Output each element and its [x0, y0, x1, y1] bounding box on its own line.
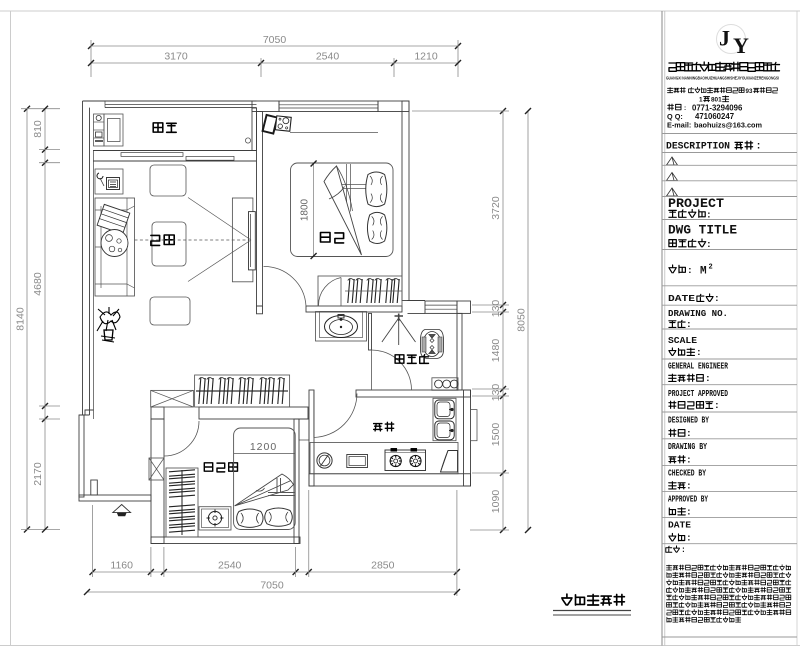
svg-text:3170: 3170 [164, 51, 188, 63]
svg-text:E-mail:: E-mail: [667, 121, 691, 130]
svg-text:PROJECT: PROJECT [668, 197, 725, 211]
svg-text:SCALE: SCALE [668, 335, 697, 346]
svg-text:3720: 3720 [490, 196, 502, 220]
svg-text:1090: 1090 [490, 490, 502, 514]
svg-text::: : [714, 293, 720, 304]
svg-text:GENERAL ENGINEER: GENERAL ENGINEER [668, 361, 728, 372]
svg-text:DESCRIPTION: DESCRIPTION [666, 142, 730, 153]
svg-text::: : [687, 265, 693, 276]
svg-text:0771-3294096: 0771-3294096 [692, 103, 743, 112]
svg-text:DRAWING NO.: DRAWING NO. [668, 308, 728, 319]
svg-text:GUANGXI NANNINGBAOHUIZHUANGSHI: GUANGXI NANNINGBAOHUIZHUANGSHISHEJIYOUXI… [666, 76, 779, 81]
svg-text::: : [686, 319, 692, 330]
svg-text:1800: 1800 [300, 198, 311, 221]
svg-text:APPROVED BY: APPROVED BY [668, 494, 708, 505]
svg-text:M: M [700, 266, 707, 278]
svg-text:baohuizs@163.com: baohuizs@163.com [694, 121, 762, 130]
svg-text:2540: 2540 [218, 560, 242, 572]
svg-text::: : [706, 239, 712, 250]
svg-text::: : [714, 400, 720, 411]
svg-text::: : [686, 481, 692, 492]
svg-text::: : [681, 546, 686, 555]
svg-text:130: 130 [490, 384, 502, 402]
svg-text:J: J [719, 26, 730, 51]
svg-text:CHECKED BY: CHECKED BY [668, 468, 706, 479]
svg-text::: : [706, 210, 712, 221]
svg-text:DATE: DATE [668, 293, 695, 304]
svg-text:1480: 1480 [490, 339, 502, 363]
svg-text:93: 93 [746, 88, 753, 95]
svg-text:7050: 7050 [263, 34, 287, 46]
svg-text:2540: 2540 [316, 51, 340, 63]
svg-text:130: 130 [490, 300, 502, 318]
svg-text:7050: 7050 [260, 580, 284, 592]
svg-text:2: 2 [709, 264, 713, 272]
svg-text::: : [686, 428, 692, 439]
svg-text:1200: 1200 [250, 441, 277, 453]
svg-text::: : [686, 455, 692, 466]
svg-text:810: 810 [32, 120, 44, 138]
svg-text:DRAWING BY: DRAWING BY [668, 441, 707, 452]
svg-text:Y: Y [733, 33, 749, 58]
svg-text:PROJECT APPROVED: PROJECT APPROVED [668, 388, 728, 399]
svg-text::: : [686, 507, 692, 518]
svg-text:2170: 2170 [32, 462, 44, 486]
svg-text::: : [696, 347, 702, 358]
svg-text::: : [684, 105, 686, 112]
svg-text:DWG TITLE: DWG TITLE [668, 224, 737, 238]
svg-text::: : [705, 373, 711, 384]
svg-text:2850: 2850 [371, 560, 395, 572]
svg-text:DESIGNED BY: DESIGNED BY [668, 415, 709, 426]
svg-text:8050: 8050 [516, 308, 528, 332]
svg-text:1500: 1500 [490, 423, 502, 447]
svg-text:1160: 1160 [110, 560, 133, 572]
svg-text:8140: 8140 [15, 307, 27, 331]
svg-text:4680: 4680 [32, 272, 44, 296]
svg-text:1210: 1210 [414, 51, 438, 63]
svg-text::: : [686, 533, 692, 544]
svg-text:DATE: DATE [668, 520, 691, 531]
svg-text::: : [756, 142, 762, 153]
